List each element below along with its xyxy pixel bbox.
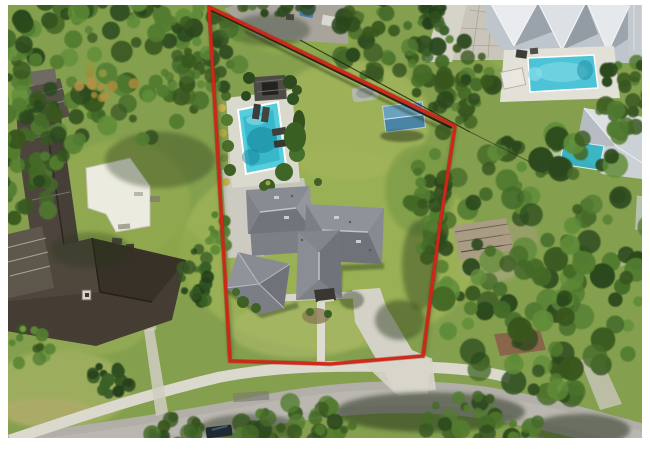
skylight	[284, 216, 289, 219]
palm-tree	[275, 163, 293, 181]
front-bush	[237, 296, 249, 308]
pool-side-tree	[284, 122, 306, 152]
skylight	[356, 240, 361, 243]
aerial-property-photo	[0, 0, 650, 450]
aerial-photo-canvas	[0, 0, 650, 450]
skylight	[274, 196, 279, 199]
skylight	[334, 216, 339, 219]
front-bush	[251, 303, 261, 313]
